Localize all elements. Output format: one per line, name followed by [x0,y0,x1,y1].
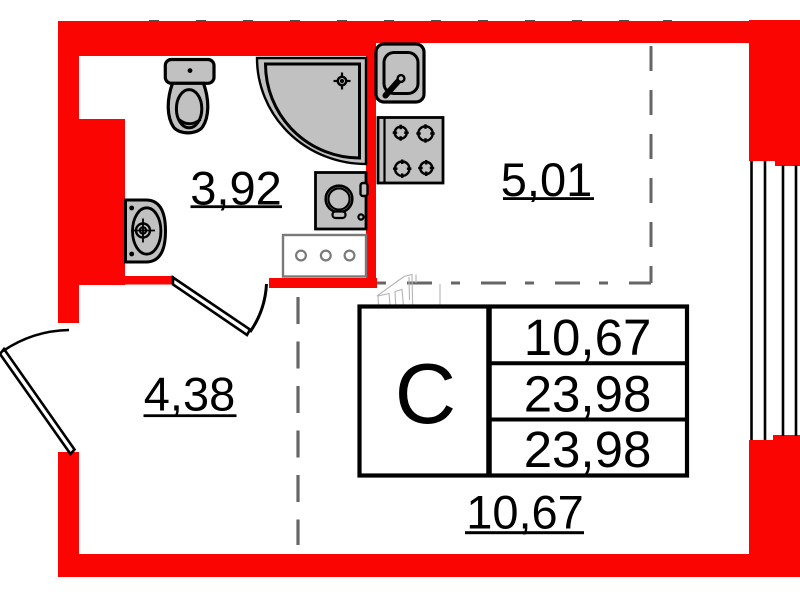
svg-text:10,67: 10,67 [466,485,584,538]
svg-text:С: С [395,347,456,442]
svg-text:4,38: 4,38 [144,368,235,421]
svg-text:10,67: 10,67 [524,309,652,366]
svg-text:23,98: 23,98 [524,366,652,423]
svg-text:23,98: 23,98 [524,421,652,478]
